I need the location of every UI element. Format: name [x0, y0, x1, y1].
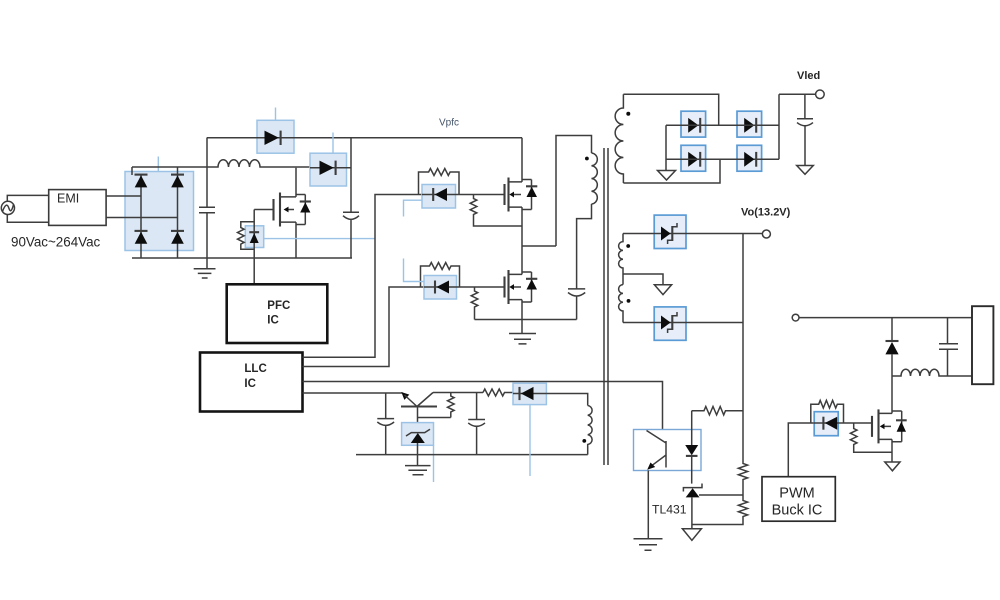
svg-text:IC: IC [267, 315, 279, 327]
svg-text:TL431: TL431 [652, 503, 687, 517]
svg-text:Vpfc: Vpfc [439, 118, 459, 129]
svg-text:90Vac~264Vac: 90Vac~264Vac [11, 235, 101, 250]
svg-text:IC: IC [244, 378, 256, 390]
svg-text:PFC: PFC [267, 300, 290, 312]
svg-text:Vled: Vled [797, 70, 820, 82]
svg-text:PWM: PWM [779, 485, 814, 501]
svg-text:EMI: EMI [57, 192, 79, 206]
svg-text:LLC: LLC [244, 363, 266, 375]
svg-text:Vo(13.2V): Vo(13.2V) [741, 207, 791, 219]
svg-text:Buck IC: Buck IC [772, 503, 823, 519]
